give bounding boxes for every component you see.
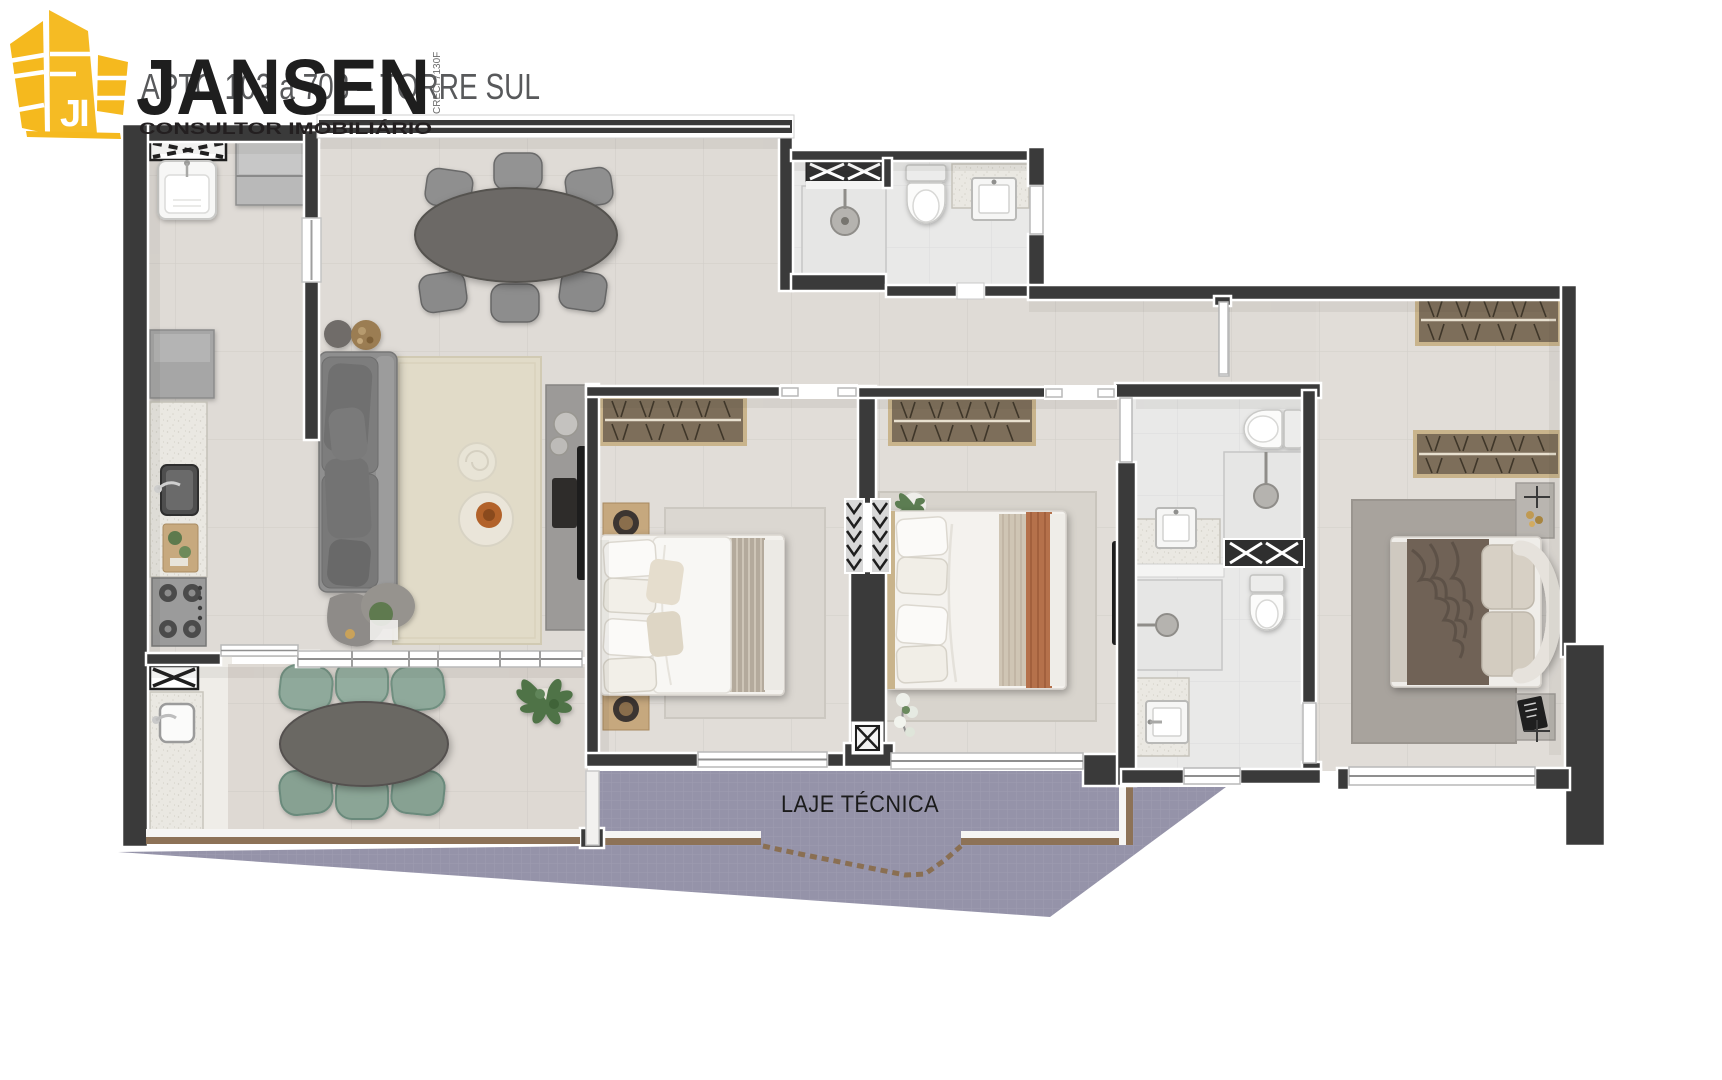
svg-text:JANSEN: JANSEN [136,42,430,131]
svg-text:CRECI 7130F: CRECI 7130F [432,52,443,114]
svg-text:JI: JI [60,93,88,135]
svg-text:LAJE TÉCNICA: LAJE TÉCNICA [781,791,939,818]
svg-text:CONSULTOR IMOBILIÁRIO: CONSULTOR IMOBILIÁRIO [139,119,432,138]
